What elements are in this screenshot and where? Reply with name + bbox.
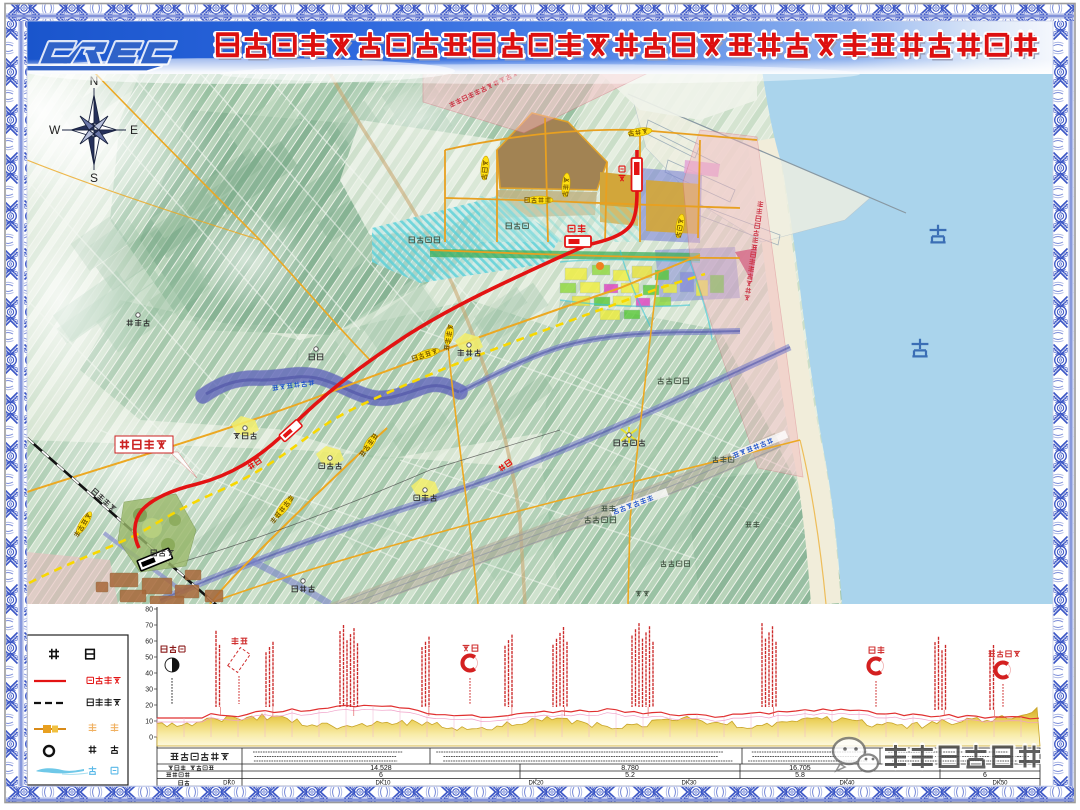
svg-text:DK30: DK30: [681, 781, 697, 787]
svg-text:E: E: [130, 123, 138, 137]
svg-text:DK20: DK20: [528, 781, 544, 787]
svg-text:5.2: 5.2: [625, 772, 635, 779]
svg-text:14.528: 14.528: [370, 765, 392, 772]
svg-text:70: 70: [145, 623, 153, 630]
svg-text:DK10: DK10: [375, 781, 391, 787]
svg-text:50: 50: [145, 655, 153, 662]
svg-text:0: 0: [149, 735, 153, 742]
svg-text:40: 40: [145, 671, 153, 678]
svg-text:60: 60: [145, 639, 153, 646]
svg-text:5.8: 5.8: [795, 772, 805, 779]
svg-text:6: 6: [379, 772, 383, 779]
svg-text:10: 10: [145, 719, 153, 726]
svg-text:W: W: [49, 123, 61, 137]
svg-text:80: 80: [145, 607, 153, 614]
svg-text:20: 20: [145, 703, 153, 710]
svg-text:6: 6: [983, 772, 987, 779]
svg-text:S: S: [90, 171, 98, 185]
svg-text:DK0: DK0: [223, 781, 235, 787]
svg-text:8.780: 8.780: [621, 765, 639, 772]
svg-text:30: 30: [145, 687, 153, 694]
svg-text:DK40: DK40: [839, 781, 855, 787]
svg-text:DK50: DK50: [992, 781, 1008, 787]
svg-text:16.705: 16.705: [789, 765, 811, 772]
